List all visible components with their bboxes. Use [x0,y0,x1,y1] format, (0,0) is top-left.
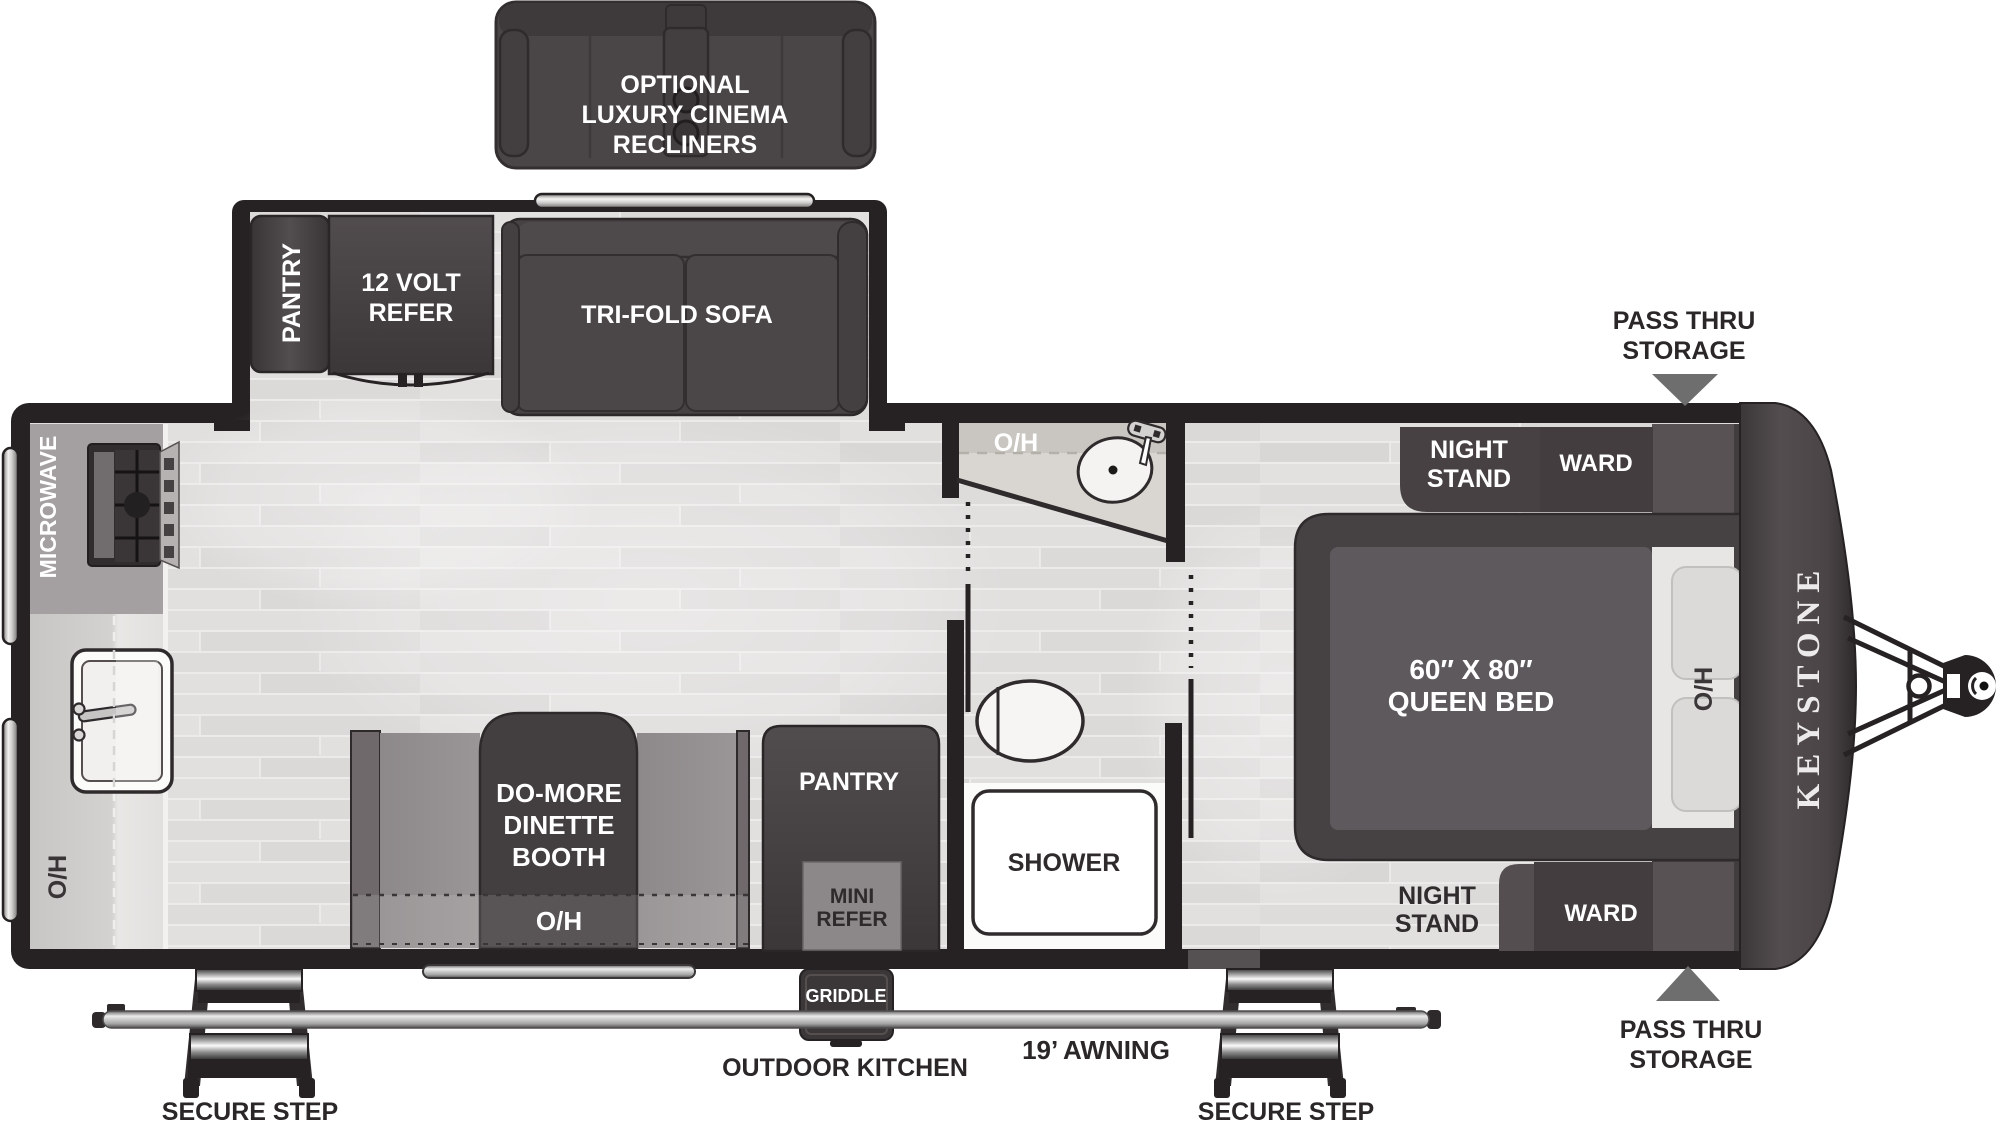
svg-text:PASS THRU: PASS THRU [1613,307,1756,335]
svg-text:SECURE STEP: SECURE STEP [1198,1098,1374,1126]
svg-text:RECLINERS: RECLINERS [613,131,757,159]
svg-text:STAND: STAND [1427,465,1511,493]
svg-text:GRIDDLE: GRIDDLE [806,986,887,1006]
svg-text:12 VOLT: 12 VOLT [361,269,461,297]
svg-text:STAND: STAND [1395,910,1479,938]
svg-text:LUXURY CINEMA: LUXURY CINEMA [582,101,789,129]
svg-text:MICROWAVE: MICROWAVE [35,436,61,579]
svg-text:O/H: O/H [1690,667,1718,711]
svg-text:SECURE STEP: SECURE STEP [162,1098,338,1126]
svg-text:NIGHT: NIGHT [1398,882,1476,910]
svg-text:SHOWER: SHOWER [1008,849,1121,877]
svg-text:STORAGE: STORAGE [1622,337,1745,365]
svg-text:WARD: WARD [1564,900,1637,927]
svg-text:STORAGE: STORAGE [1629,1046,1752,1074]
svg-text:TRI-FOLD SOFA: TRI-FOLD SOFA [581,301,773,329]
svg-text:OUTDOOR KITCHEN: OUTDOOR KITCHEN [722,1054,968,1082]
svg-text:PASS THRU: PASS THRU [1620,1016,1763,1044]
svg-text:REFER: REFER [816,908,887,931]
svg-text:DINETTE: DINETTE [503,810,614,840]
svg-text:QUEEN BED: QUEEN BED [1388,686,1554,717]
svg-text:DO-MORE: DO-MORE [496,778,622,808]
svg-text:60″ X 80″: 60″ X 80″ [1409,654,1532,685]
svg-text:BOOTH: BOOTH [512,842,606,872]
svg-text:PANTRY: PANTRY [799,768,899,796]
svg-text:O/H: O/H [536,906,582,936]
svg-text:O/H: O/H [994,429,1038,457]
svg-text:19’ AWNING: 19’ AWNING [1022,1035,1170,1065]
svg-text:PANTRY: PANTRY [278,243,306,343]
svg-text:OPTIONAL: OPTIONAL [620,71,749,99]
svg-text:MINI: MINI [830,885,874,908]
svg-text:WARD: WARD [1559,450,1632,477]
svg-text:NIGHT: NIGHT [1430,436,1508,464]
svg-text:O/H: O/H [44,855,72,899]
svg-text:REFER: REFER [369,299,454,327]
svg-text:KEYSTONE: KEYSTONE [1791,563,1827,810]
